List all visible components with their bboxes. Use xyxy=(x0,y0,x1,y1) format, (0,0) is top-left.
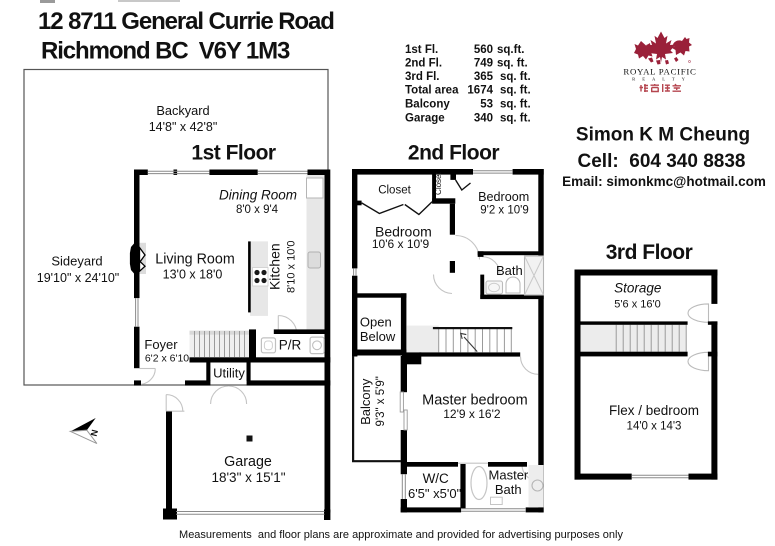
svg-text:560: 560 xyxy=(474,44,493,56)
svg-text:Living Room: Living Room xyxy=(155,252,234,268)
svg-text:Richmond BC V6Y 1M3: Richmond BC V6Y 1M3 xyxy=(41,38,290,65)
svg-text:19'10" x 24'10": 19'10" x 24'10" xyxy=(37,271,119,285)
svg-text:Flex / bedroom: Flex / bedroom xyxy=(609,403,699,418)
svg-text:Backyard: Backyard xyxy=(156,103,209,118)
svg-text:1st Fl.: 1st Fl. xyxy=(405,44,438,56)
svg-text:Master bedroom: Master bedroom xyxy=(422,392,528,408)
svg-text:Total area: Total area xyxy=(405,85,459,97)
svg-text:Dining Room: Dining Room xyxy=(219,188,297,203)
svg-text:3rd Floor: 3rd Floor xyxy=(606,241,693,264)
svg-text:Cell: 604 340 8838: Cell: 604 340 8838 xyxy=(578,151,746,172)
svg-text:R E A L T Y: R E A L T Y xyxy=(632,76,688,81)
svg-text:Master: Master xyxy=(489,468,529,483)
svg-text:18'3" x 15'1": 18'3" x 15'1" xyxy=(211,470,285,485)
svg-text:Utility: Utility xyxy=(213,366,245,381)
svg-text:Storage: Storage xyxy=(614,281,661,296)
svg-text:8'0 x 9'4: 8'0 x 9'4 xyxy=(236,204,279,216)
svg-text:Closet: Closet xyxy=(434,171,443,194)
svg-text:Closet: Closet xyxy=(378,185,411,197)
svg-text:W/C: W/C xyxy=(423,471,449,486)
svg-text:3rd Fl.: 3rd Fl. xyxy=(405,71,440,83)
svg-text:5'6 x 16'0: 5'6 x 16'0 xyxy=(614,298,660,310)
svg-text:6'5" x5'0": 6'5" x5'0" xyxy=(408,486,462,501)
svg-text:8'10 x 10'0: 8'10 x 10'0 xyxy=(285,240,297,293)
svg-text:Balcony: Balcony xyxy=(405,99,450,111)
svg-text:365: 365 xyxy=(474,71,494,83)
svg-text:Bath: Bath xyxy=(495,482,522,497)
svg-text:Balcony: Balcony xyxy=(358,378,373,425)
svg-text:12'9 x 16'2: 12'9 x 16'2 xyxy=(443,407,501,421)
svg-text:Bedroom: Bedroom xyxy=(478,190,529,204)
svg-text:Kitchen: Kitchen xyxy=(267,243,283,290)
svg-text:sq. ft.: sq. ft. xyxy=(500,99,531,111)
svg-text:Below: Below xyxy=(360,329,396,344)
svg-text:P/R: P/R xyxy=(279,338,302,353)
svg-text:Email: simonkmc@hotmail.com: Email: simonkmc@hotmail.com xyxy=(562,174,766,189)
svg-text:6'2 x 6'10: 6'2 x 6'10 xyxy=(145,353,189,365)
svg-text:sq.ft.: sq.ft. xyxy=(497,44,524,56)
svg-text:sq. ft.: sq. ft. xyxy=(500,71,531,83)
svg-text:ROYAL PACIFIC: ROYAL PACIFIC xyxy=(623,67,696,77)
svg-text:sq. ft.: sq. ft. xyxy=(497,58,528,70)
svg-text:10'6 x 10'9: 10'6 x 10'9 xyxy=(372,237,430,251)
svg-text:9'2 x 10'9: 9'2 x 10'9 xyxy=(480,204,529,216)
svg-text:Garage: Garage xyxy=(405,113,445,125)
svg-text:749: 749 xyxy=(474,58,493,70)
svg-text:9'3" x 5'9": 9'3" x 5'9" xyxy=(375,376,387,426)
svg-text:13'0 x 18'0: 13'0 x 18'0 xyxy=(163,268,223,282)
svg-text:2nd Fl.: 2nd Fl. xyxy=(405,58,442,70)
svg-text:sq. ft.: sq. ft. xyxy=(500,85,531,97)
svg-text:Garage: Garage xyxy=(224,454,272,470)
svg-text:1674: 1674 xyxy=(467,85,493,97)
svg-text:Measurements and floor plans: Measurements and floor plans are approxi… xyxy=(179,529,623,541)
svg-text:2nd Floor: 2nd Floor xyxy=(408,142,499,165)
svg-text:Open: Open xyxy=(360,314,392,329)
svg-text:340: 340 xyxy=(474,113,493,125)
svg-text:Bath: Bath xyxy=(496,263,523,278)
svg-text:1st Floor: 1st Floor xyxy=(191,142,276,165)
svg-text:Foyer: Foyer xyxy=(144,337,178,352)
svg-text:Simon K M Cheung: Simon K M Cheung xyxy=(576,125,750,146)
svg-text:Sideyard: Sideyard xyxy=(51,254,102,269)
svg-text:12 8711 General Currie Road: 12 8711 General Currie Road xyxy=(38,8,334,35)
svg-text:sq. ft.: sq. ft. xyxy=(500,113,531,125)
svg-text:14'0 x 14'3: 14'0 x 14'3 xyxy=(627,420,682,432)
svg-text:14'8" x 42'8": 14'8" x 42'8" xyxy=(149,120,218,134)
svg-text:53: 53 xyxy=(480,99,493,111)
